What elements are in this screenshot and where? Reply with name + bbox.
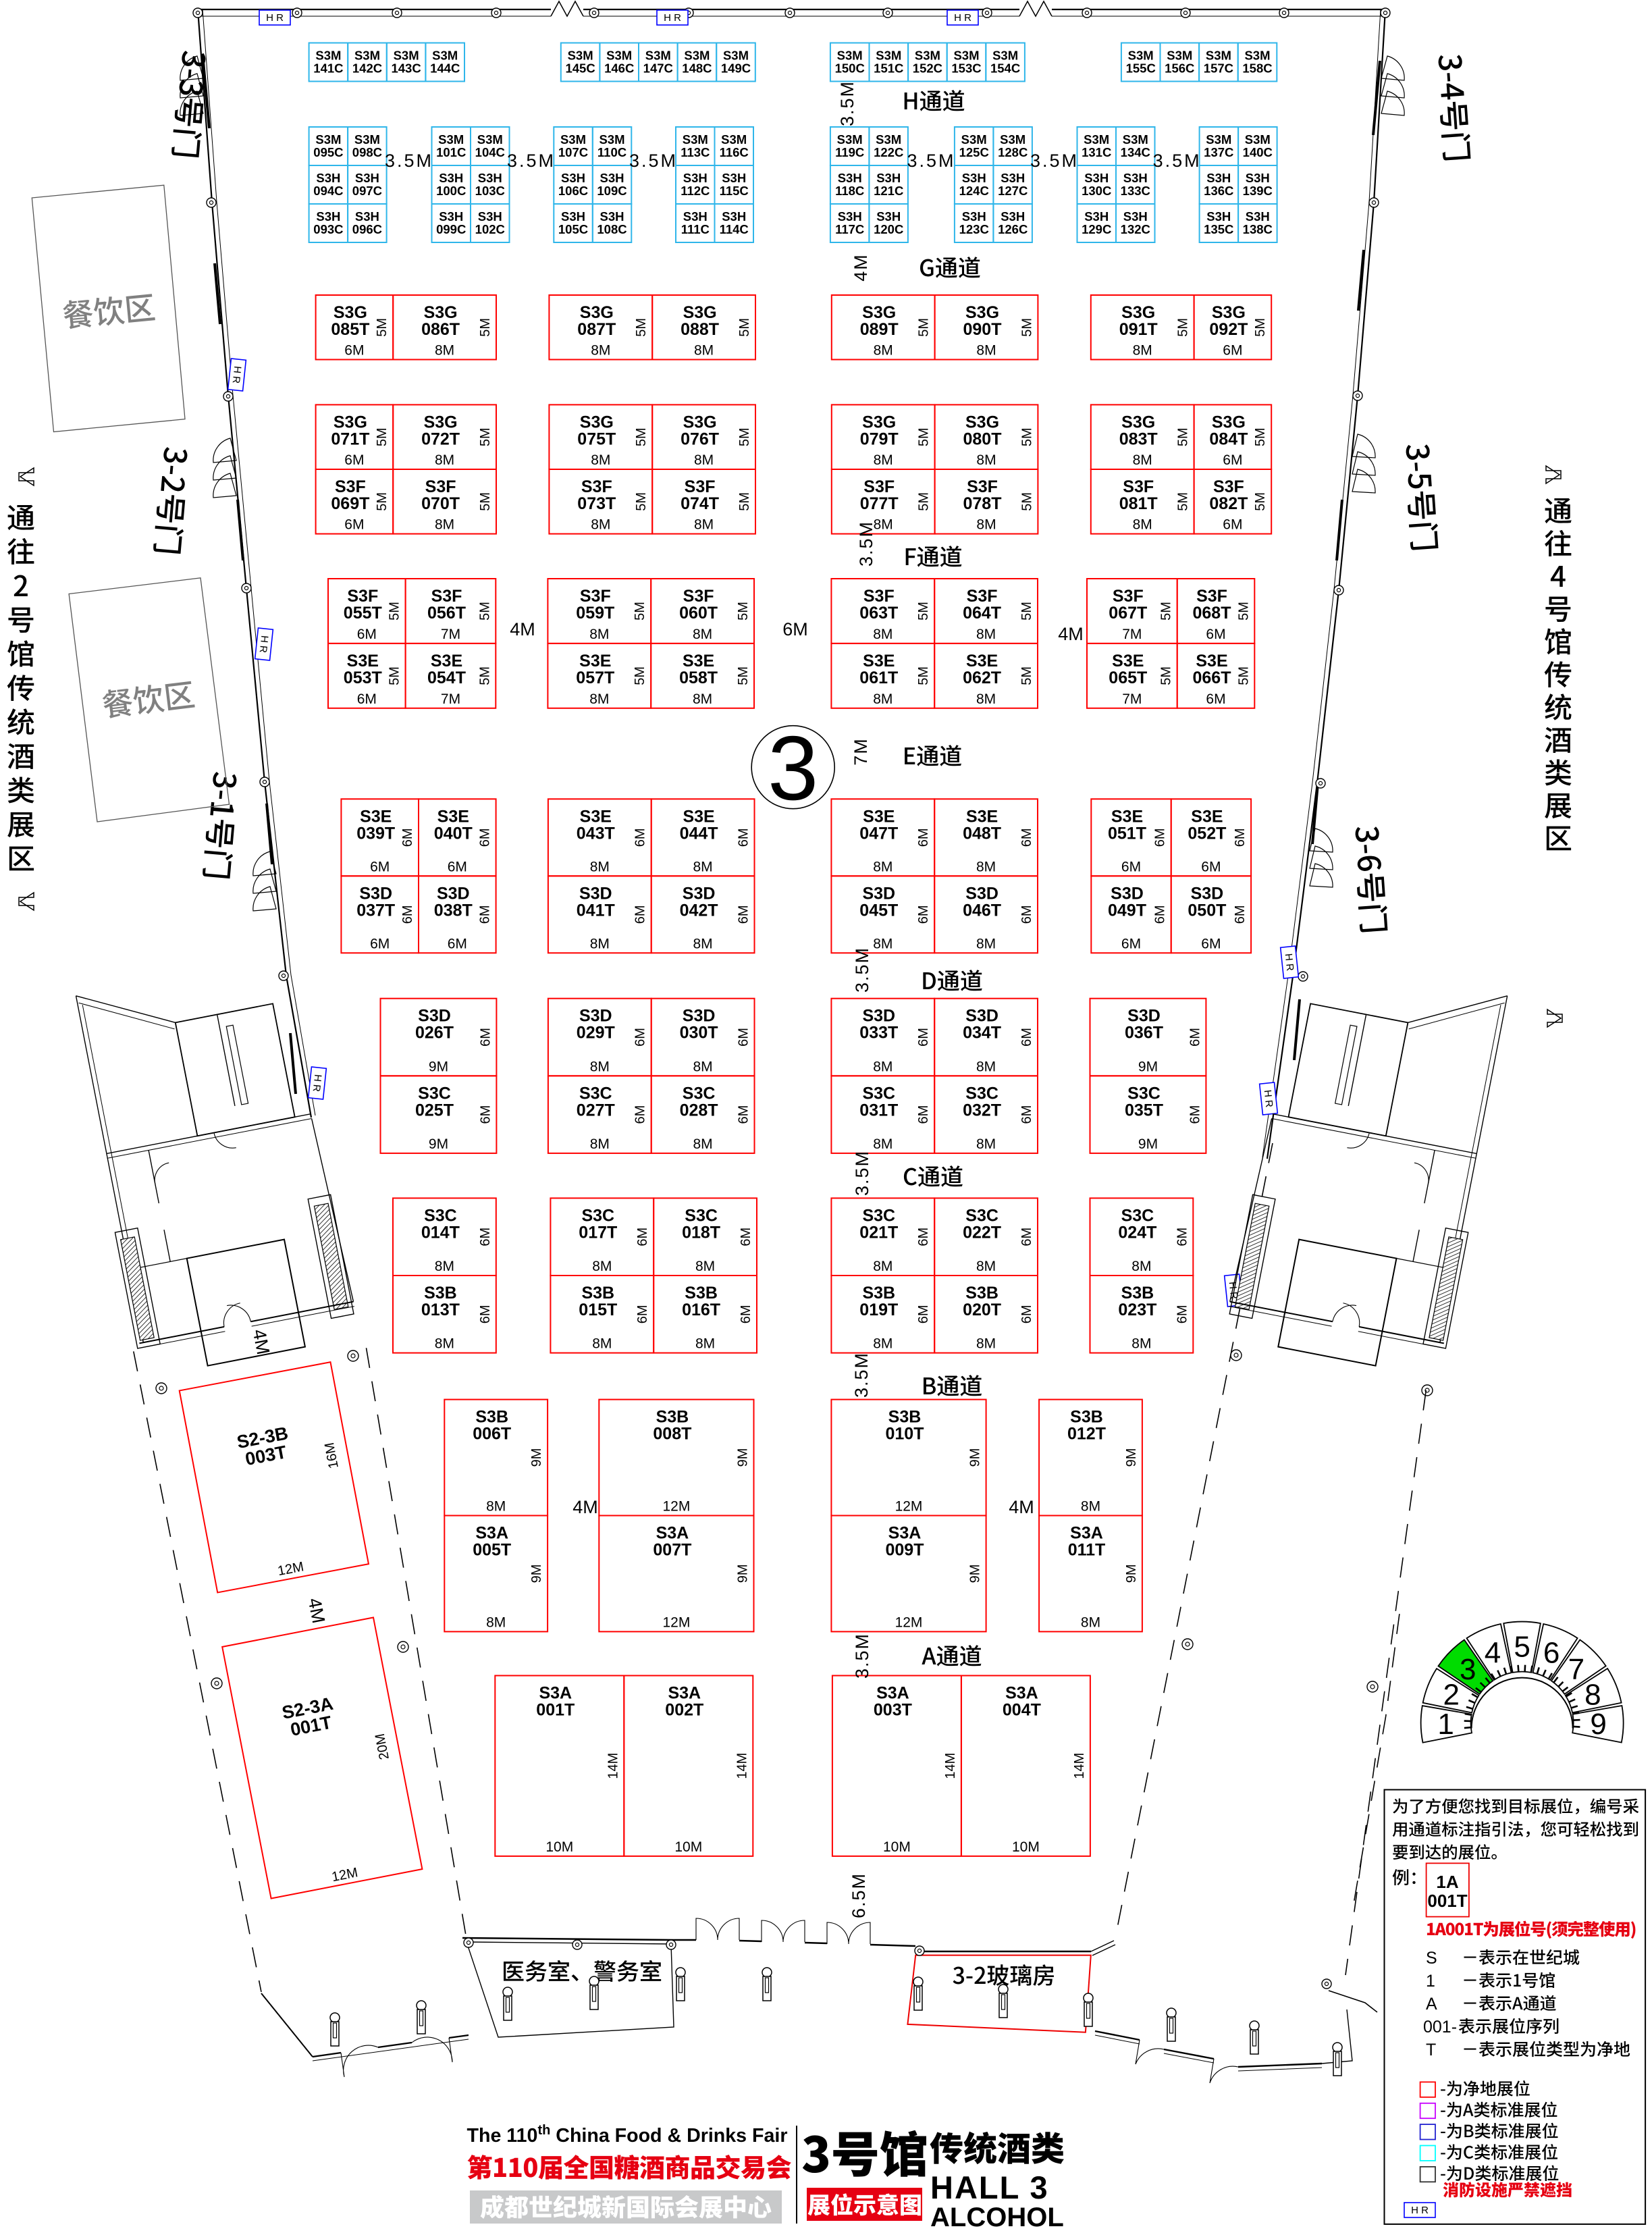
- svg-text:6M: 6M: [357, 627, 377, 642]
- svg-text:103C: 103C: [475, 184, 505, 198]
- svg-text:8M: 8M: [874, 452, 893, 468]
- svg-text:5M: 5M: [634, 492, 649, 511]
- svg-text:156C: 156C: [1165, 61, 1194, 76]
- svg-text:6M: 6M: [737, 1028, 751, 1047]
- svg-text:078T: 078T: [963, 494, 1002, 513]
- svg-text:5M: 5M: [1019, 666, 1034, 685]
- svg-text:S3M: S3M: [1206, 132, 1231, 147]
- svg-text:8M: 8M: [873, 1259, 892, 1274]
- svg-text:109C: 109C: [597, 184, 627, 198]
- svg-text:6M: 6M: [916, 905, 931, 924]
- svg-text:115C: 115C: [720, 184, 749, 198]
- svg-text:089T: 089T: [860, 320, 899, 339]
- svg-text:099C: 099C: [436, 222, 466, 236]
- svg-text:136C: 136C: [1204, 184, 1233, 198]
- svg-text:S3M: S3M: [438, 132, 464, 147]
- svg-text:S3H: S3H: [561, 209, 585, 224]
- svg-text:S3A: S3A: [668, 1684, 701, 1703]
- svg-text:S3H: S3H: [683, 209, 708, 224]
- svg-text:S3M: S3M: [961, 132, 987, 147]
- svg-text:S3M: S3M: [315, 49, 341, 63]
- svg-text:H R: H R: [954, 12, 971, 24]
- svg-text:127C: 127C: [998, 184, 1028, 198]
- svg-text:5M: 5M: [634, 427, 649, 446]
- svg-text:S3A: S3A: [656, 1524, 689, 1543]
- svg-text:6M: 6M: [916, 1105, 931, 1124]
- svg-text:S3G: S3G: [424, 303, 458, 322]
- svg-text:121C: 121C: [874, 184, 903, 198]
- svg-text:S3H: S3H: [962, 171, 986, 185]
- svg-text:8M: 8M: [486, 1499, 506, 1515]
- svg-text:4M: 4M: [304, 1596, 329, 1625]
- svg-text:S3H: S3H: [962, 209, 986, 224]
- svg-text:8M: 8M: [976, 859, 996, 874]
- svg-text:S3D: S3D: [965, 1007, 998, 1026]
- svg-text:111C: 111C: [681, 222, 710, 236]
- svg-text:S3M: S3M: [645, 49, 671, 63]
- svg-text:081T: 081T: [1119, 494, 1158, 513]
- svg-text:033T: 033T: [859, 1024, 898, 1043]
- svg-text:8M: 8M: [592, 1336, 612, 1352]
- svg-text:A: A: [1426, 1995, 1437, 2014]
- svg-text:6M: 6M: [1233, 905, 1248, 924]
- svg-text:135C: 135C: [1204, 222, 1233, 236]
- svg-text:8M: 8M: [695, 1259, 715, 1274]
- svg-text:6M: 6M: [1153, 905, 1168, 924]
- svg-text:S3M: S3M: [1167, 49, 1192, 63]
- svg-text:S3H: S3H: [838, 209, 862, 224]
- svg-text:S3M: S3M: [1128, 49, 1154, 63]
- svg-text:8M: 8M: [590, 1136, 610, 1152]
- svg-text:097C: 097C: [352, 184, 382, 198]
- svg-text:9M: 9M: [1124, 1565, 1139, 1583]
- svg-text:6M: 6M: [916, 828, 931, 847]
- svg-text:6M: 6M: [448, 859, 467, 874]
- svg-text:S3C: S3C: [862, 1206, 895, 1225]
- svg-text:6M: 6M: [1121, 859, 1141, 874]
- svg-text:049T: 049T: [1108, 901, 1146, 920]
- svg-text:S3B: S3B: [965, 1284, 998, 1303]
- svg-text:S3H: S3H: [1206, 209, 1231, 224]
- svg-text:9M: 9M: [1138, 1136, 1158, 1152]
- svg-text:4M: 4M: [572, 1497, 598, 1517]
- svg-text:3: 3: [768, 717, 818, 819]
- svg-text:106C: 106C: [558, 184, 588, 198]
- svg-text:S3D: S3D: [862, 1007, 895, 1026]
- svg-text:034T: 034T: [963, 1024, 1001, 1043]
- svg-text:6M: 6M: [370, 859, 390, 874]
- svg-text:5M: 5M: [737, 492, 752, 511]
- svg-text:8M: 8M: [589, 627, 609, 642]
- svg-text:027T: 027T: [577, 1101, 615, 1120]
- svg-text:5M: 5M: [1019, 602, 1034, 621]
- svg-text:055T: 055T: [344, 604, 382, 623]
- svg-text:037T: 037T: [356, 901, 395, 920]
- svg-text:S3F: S3F: [967, 587, 998, 606]
- svg-text:056T: 056T: [427, 604, 466, 623]
- svg-text:011T: 011T: [1068, 1541, 1106, 1560]
- svg-text:S3M: S3M: [876, 49, 901, 63]
- svg-text:8M: 8M: [976, 452, 996, 468]
- svg-text:117C: 117C: [835, 222, 864, 236]
- svg-text:122C: 122C: [874, 145, 903, 159]
- svg-text:3.5M: 3.5M: [856, 521, 876, 567]
- svg-text:6M: 6M: [1188, 1105, 1202, 1124]
- svg-text:5M: 5M: [1253, 427, 1268, 446]
- svg-text:5M: 5M: [917, 318, 932, 337]
- svg-text:S3D: S3D: [359, 884, 392, 903]
- svg-text:5M: 5M: [478, 318, 493, 337]
- svg-text:6M: 6M: [1223, 452, 1242, 468]
- svg-text:S3F: S3F: [685, 477, 716, 496]
- svg-text:5M: 5M: [375, 318, 390, 337]
- svg-text:6M: 6M: [739, 1305, 753, 1323]
- svg-text:6M: 6M: [1019, 1228, 1034, 1246]
- svg-text:S3F: S3F: [1123, 477, 1154, 496]
- svg-text:3.5M: 3.5M: [852, 1633, 872, 1679]
- svg-text:8M: 8M: [694, 343, 714, 359]
- svg-text:001T: 001T: [536, 1701, 575, 1720]
- svg-text:7: 7: [1568, 1653, 1584, 1686]
- svg-text:T: T: [1426, 2041, 1436, 2059]
- svg-text:8M: 8M: [1133, 452, 1152, 468]
- svg-text:6M: 6M: [1019, 828, 1034, 847]
- svg-text:S3E: S3E: [431, 652, 462, 671]
- svg-text:5M: 5M: [478, 492, 493, 511]
- svg-text:8M: 8M: [976, 1336, 996, 1352]
- svg-text:5M: 5M: [478, 427, 493, 446]
- svg-text:6M: 6M: [400, 905, 415, 924]
- svg-text:H R: H R: [257, 635, 271, 654]
- svg-text:023T: 023T: [1118, 1301, 1156, 1319]
- svg-text:148C: 148C: [682, 61, 712, 76]
- svg-text:5M: 5M: [1019, 427, 1034, 446]
- svg-text:8M: 8M: [976, 627, 996, 642]
- svg-text:3.5M: 3.5M: [852, 947, 872, 993]
- svg-text:S3E: S3E: [360, 807, 392, 826]
- svg-text:S3D: S3D: [1191, 884, 1224, 903]
- svg-text:143C: 143C: [391, 61, 421, 76]
- svg-text:038T: 038T: [434, 901, 473, 920]
- svg-text:S3M: S3M: [432, 49, 458, 63]
- svg-text:158C: 158C: [1242, 61, 1272, 76]
- svg-text:060T: 060T: [679, 604, 718, 623]
- svg-text:043T: 043T: [577, 824, 615, 843]
- svg-text:6M: 6M: [478, 1028, 493, 1047]
- svg-text:S3F: S3F: [967, 477, 998, 496]
- svg-text:022T: 022T: [963, 1223, 1001, 1242]
- svg-text:6M: 6M: [1201, 936, 1221, 951]
- svg-text:S3G: S3G: [424, 413, 458, 431]
- svg-text:S3C: S3C: [862, 1084, 895, 1103]
- svg-text:S3G: S3G: [334, 303, 367, 322]
- svg-text:062T: 062T: [963, 668, 1001, 687]
- svg-text:S3M: S3M: [915, 49, 940, 63]
- svg-text:16M: 16M: [322, 1441, 342, 1469]
- svg-text:5: 5: [1514, 1631, 1530, 1664]
- svg-text:092T: 092T: [1209, 320, 1248, 339]
- svg-text:131C: 131C: [1082, 145, 1111, 159]
- svg-text:8M: 8M: [693, 859, 713, 874]
- svg-text:5M: 5M: [477, 666, 492, 685]
- svg-text:S3C: S3C: [965, 1084, 998, 1103]
- svg-text:8M: 8M: [590, 1059, 610, 1074]
- svg-text:S3F: S3F: [431, 587, 462, 606]
- svg-text:001-: 001-: [1423, 2018, 1457, 2037]
- svg-text:S3M: S3M: [723, 49, 749, 63]
- svg-text:S3M: S3M: [568, 49, 593, 63]
- svg-text:8M: 8M: [590, 859, 610, 874]
- svg-text:082T: 082T: [1209, 494, 1248, 513]
- svg-text:8M: 8M: [1081, 1614, 1100, 1630]
- svg-text:S3M: S3M: [606, 49, 632, 63]
- svg-text:S3F: S3F: [863, 587, 895, 606]
- svg-text:8M: 8M: [693, 691, 712, 707]
- svg-text:098C: 098C: [352, 145, 382, 159]
- svg-text:4M: 4M: [510, 619, 535, 639]
- svg-text:050T: 050T: [1188, 901, 1226, 920]
- svg-text:10M: 10M: [883, 1839, 911, 1855]
- svg-text:6M: 6M: [344, 517, 364, 533]
- svg-text:5M: 5M: [1019, 492, 1034, 511]
- svg-text:083T: 083T: [1119, 429, 1158, 448]
- svg-text:S3M: S3M: [599, 132, 624, 147]
- svg-text:S3M: S3M: [1244, 49, 1270, 63]
- svg-text:5M: 5M: [633, 602, 647, 621]
- svg-text:8M: 8M: [1131, 1259, 1151, 1274]
- svg-text:153C: 153C: [951, 61, 981, 76]
- svg-text:6M: 6M: [478, 828, 493, 847]
- svg-text:S3G: S3G: [683, 303, 717, 322]
- svg-text:S3M: S3M: [354, 49, 380, 63]
- svg-text:9M: 9M: [429, 1136, 448, 1152]
- svg-text:S3F: S3F: [347, 587, 378, 606]
- svg-text:9M: 9M: [1138, 1059, 1158, 1074]
- svg-text:S3H: S3H: [600, 171, 624, 185]
- svg-text:6M: 6M: [478, 1305, 493, 1323]
- svg-text:S3C: S3C: [1121, 1206, 1154, 1225]
- svg-text:039T: 039T: [356, 824, 395, 843]
- svg-text:5M: 5M: [736, 602, 751, 621]
- svg-text:S3G: S3G: [1121, 303, 1155, 322]
- svg-text:101C: 101C: [436, 145, 466, 159]
- svg-text:9M: 9M: [1124, 1448, 1139, 1467]
- svg-text:S3M: S3M: [477, 132, 503, 147]
- svg-text:6M: 6M: [1201, 859, 1221, 874]
- svg-text:12M: 12M: [895, 1614, 923, 1630]
- svg-text:S3E: S3E: [437, 807, 469, 826]
- svg-text:S3C: S3C: [418, 1084, 451, 1103]
- svg-text:S3H: S3H: [1001, 171, 1025, 185]
- svg-text:5M: 5M: [1176, 492, 1191, 511]
- svg-text:5M: 5M: [1253, 318, 1268, 337]
- svg-text:S: S: [1426, 1949, 1437, 1968]
- svg-text:5M: 5M: [1176, 427, 1191, 446]
- svg-text:H R: H R: [1262, 1089, 1275, 1108]
- svg-text:3.5M: 3.5M: [851, 1352, 872, 1398]
- svg-text:8M: 8M: [435, 343, 454, 359]
- svg-text:4M: 4M: [1058, 624, 1084, 644]
- svg-text:S3E: S3E: [683, 807, 714, 826]
- svg-text:S3F: S3F: [580, 587, 611, 606]
- svg-text:6M: 6M: [400, 828, 415, 847]
- svg-text:130C: 130C: [1082, 184, 1111, 198]
- svg-text:119C: 119C: [835, 145, 864, 159]
- svg-text:S3H: S3H: [316, 171, 340, 185]
- svg-text:5M: 5M: [1019, 318, 1034, 337]
- svg-text:S3A: S3A: [888, 1524, 922, 1543]
- svg-text:079T: 079T: [860, 429, 899, 448]
- svg-text:059T: 059T: [576, 604, 614, 623]
- svg-text:S3D: S3D: [1127, 1007, 1161, 1026]
- svg-text:S3M: S3M: [721, 132, 747, 147]
- svg-text:S3H: S3H: [600, 209, 624, 224]
- svg-text:007T: 007T: [653, 1541, 691, 1560]
- svg-text:4M: 4M: [1009, 1497, 1034, 1517]
- svg-text:7M: 7M: [441, 627, 460, 642]
- svg-text:035T: 035T: [1125, 1101, 1163, 1120]
- svg-text:146C: 146C: [604, 61, 634, 76]
- svg-text:H R: H R: [664, 12, 681, 24]
- svg-text:5M: 5M: [1253, 492, 1268, 511]
- svg-text:077T: 077T: [860, 494, 899, 513]
- svg-text:1: 1: [1426, 1972, 1435, 1991]
- svg-text:084T: 084T: [1209, 429, 1248, 448]
- svg-text:S3H: S3H: [1246, 171, 1270, 185]
- svg-text:003T: 003T: [874, 1701, 912, 1720]
- svg-text:7M: 7M: [1122, 627, 1142, 642]
- svg-text:7M: 7M: [441, 691, 460, 707]
- svg-text:H R: H R: [311, 1074, 324, 1093]
- svg-text:004T: 004T: [1003, 1701, 1041, 1720]
- svg-text:8M: 8M: [873, 1336, 892, 1352]
- svg-text:12M: 12M: [662, 1499, 690, 1515]
- svg-text:8M: 8M: [694, 517, 714, 533]
- svg-text:S3H: S3H: [876, 171, 901, 185]
- svg-text:019T: 019T: [859, 1301, 898, 1319]
- svg-text:9M: 9M: [529, 1448, 544, 1467]
- svg-text:157C: 157C: [1204, 61, 1233, 76]
- svg-text:5M: 5M: [1159, 666, 1174, 685]
- svg-text:142C: 142C: [352, 61, 382, 76]
- svg-text:017T: 017T: [579, 1223, 617, 1242]
- svg-text:001T: 001T: [1427, 1891, 1467, 1911]
- svg-text:073T: 073T: [577, 494, 616, 513]
- svg-text:8M: 8M: [591, 343, 610, 359]
- svg-text:5M: 5M: [634, 318, 649, 337]
- svg-text:9M: 9M: [968, 1448, 983, 1467]
- svg-text:047T: 047T: [859, 824, 898, 843]
- svg-text:013T: 013T: [421, 1301, 460, 1319]
- svg-text:014T: 014T: [421, 1223, 460, 1242]
- svg-text:S3D: S3D: [862, 884, 895, 903]
- svg-text:S3C: S3C: [1127, 1084, 1161, 1103]
- svg-text:8M: 8M: [693, 1059, 713, 1074]
- svg-text:S3B: S3B: [1121, 1284, 1154, 1303]
- svg-text:053T: 053T: [344, 668, 382, 687]
- svg-text:S3D: S3D: [418, 1007, 451, 1026]
- svg-text:4M: 4M: [851, 253, 871, 282]
- svg-text:S3M: S3M: [683, 132, 708, 147]
- svg-text:1: 1: [1437, 1708, 1454, 1741]
- svg-text:8M: 8M: [976, 936, 996, 951]
- svg-text:128C: 128C: [998, 145, 1028, 159]
- svg-text:S3G: S3G: [580, 303, 614, 322]
- svg-text:S3B: S3B: [685, 1284, 718, 1303]
- svg-text:093C: 093C: [313, 222, 343, 236]
- svg-text:154C: 154C: [990, 61, 1020, 76]
- svg-text:S3G: S3G: [1212, 303, 1246, 322]
- svg-text:018T: 018T: [682, 1223, 720, 1242]
- svg-text:5M: 5M: [1159, 602, 1174, 621]
- svg-text:6M: 6M: [1019, 1105, 1034, 1124]
- svg-text:4: 4: [1485, 1636, 1501, 1669]
- svg-text:3.5M: 3.5M: [629, 151, 678, 171]
- svg-text:S3M: S3M: [560, 132, 586, 147]
- svg-text:6M: 6M: [737, 828, 751, 847]
- svg-text:6M: 6M: [448, 936, 467, 951]
- svg-text:6M: 6M: [370, 936, 390, 951]
- svg-text:042T: 042T: [680, 901, 718, 920]
- svg-text:036T: 036T: [1125, 1024, 1163, 1043]
- svg-text:3: 3: [1460, 1653, 1476, 1686]
- svg-text:The 110th China Food & Drinks: The 110th China Food & Drinks Fair: [467, 2123, 788, 2147]
- svg-text:S3C: S3C: [965, 1206, 998, 1225]
- svg-text:8: 8: [1584, 1678, 1601, 1711]
- svg-text:S3M: S3M: [1000, 132, 1025, 147]
- svg-text:S3D: S3D: [579, 1007, 612, 1026]
- svg-text:8M: 8M: [1133, 343, 1152, 359]
- svg-text:S3M: S3M: [1206, 49, 1231, 63]
- svg-text:8M: 8M: [435, 1259, 454, 1274]
- svg-text:8M: 8M: [486, 1614, 506, 1630]
- svg-text:8M: 8M: [693, 936, 713, 951]
- svg-text:S3E: S3E: [863, 652, 895, 671]
- svg-text:S3H: S3H: [1084, 171, 1109, 185]
- svg-text:S3E: S3E: [347, 652, 379, 671]
- svg-text:9M: 9M: [529, 1565, 544, 1583]
- svg-text:090T: 090T: [963, 320, 1002, 339]
- svg-text:141C: 141C: [313, 61, 343, 76]
- svg-text:1A: 1A: [1436, 1872, 1458, 1892]
- svg-text:S3B: S3B: [888, 1408, 922, 1427]
- svg-text:8M: 8M: [874, 343, 893, 359]
- svg-text:S3G: S3G: [862, 413, 896, 431]
- svg-text:067T: 067T: [1109, 604, 1147, 623]
- svg-text:6M: 6M: [344, 452, 364, 468]
- svg-text:8M: 8M: [694, 452, 714, 468]
- svg-text:041T: 041T: [577, 901, 615, 920]
- svg-text:085T: 085T: [331, 320, 369, 339]
- svg-text:S3H: S3H: [838, 171, 862, 185]
- svg-text:152C: 152C: [913, 61, 942, 76]
- svg-text:S3H: S3H: [478, 209, 502, 224]
- svg-text:6M: 6M: [478, 905, 493, 924]
- svg-text:6M: 6M: [782, 619, 808, 639]
- svg-text:058T: 058T: [679, 668, 718, 687]
- svg-text:14M: 14M: [735, 1753, 749, 1779]
- svg-text:10M: 10M: [545, 1839, 573, 1855]
- svg-text:S3M: S3M: [1084, 132, 1109, 147]
- svg-text:5M: 5M: [375, 427, 390, 446]
- svg-text:6M: 6M: [633, 1028, 648, 1047]
- svg-text:6M: 6M: [737, 1105, 751, 1124]
- svg-text:S3M: S3M: [1245, 132, 1271, 147]
- svg-text:6M: 6M: [1206, 627, 1225, 642]
- svg-text:5M: 5M: [916, 666, 931, 685]
- svg-text:029T: 029T: [577, 1024, 615, 1043]
- svg-text:S3M: S3M: [315, 132, 341, 147]
